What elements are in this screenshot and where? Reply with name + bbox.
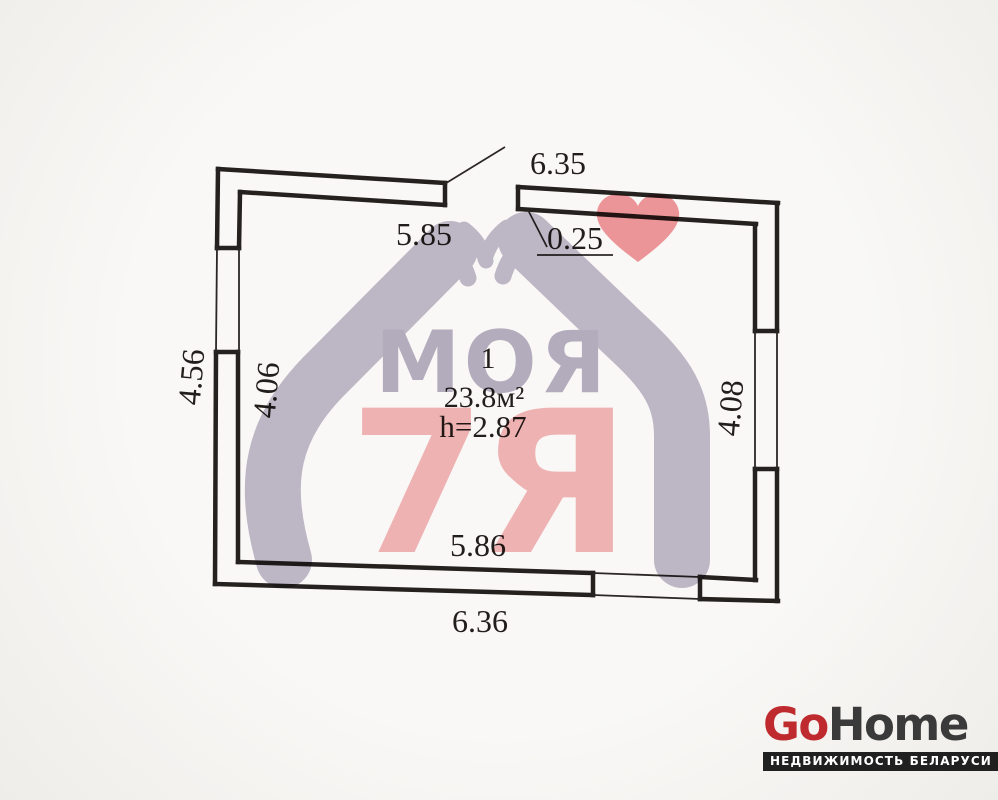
bottom-wall-right-inner	[700, 577, 756, 580]
floor-plan-drawing: 6.35 5.85 0.25 4.56 4.06 4.08 5.86 6.36 …	[0, 0, 998, 800]
scanned-floorplan-page: 6.35 5.85 0.25 4.56 4.06 4.08 5.86 6.36 …	[0, 0, 998, 800]
dim-left-outer: 4.56	[171, 348, 212, 407]
bottom-wall-right-outer	[700, 599, 778, 601]
dim-bottom-outer: 6.36	[452, 603, 508, 639]
top-wall-left-outer	[218, 169, 445, 183]
left-wall-upper-inner	[239, 192, 240, 248]
logo-home: Home	[828, 698, 968, 751]
logo-tagline-bar: НЕДВИЖИМОСТЬ БЕЛАРУСИ	[763, 752, 998, 771]
watermark-suffix: 7Я	[349, 368, 623, 599]
left-wall-upper-outer	[217, 169, 218, 248]
gohome-brand: GoHome	[763, 699, 973, 751]
door-opening-leader	[443, 147, 505, 185]
left-wall-lower-outer	[215, 352, 216, 584]
logo-go: Go	[763, 698, 828, 751]
heart-icon	[597, 194, 679, 262]
dim-top-outer: 6.35	[530, 145, 586, 181]
dim-right-inner: 4.08	[710, 379, 751, 438]
watermark: МОЯ 7Я	[273, 194, 682, 599]
gohome-logo: GoHome НЕДВИЖИМОСТЬ БЕЛАРУСИ	[763, 699, 973, 771]
top-wall-left-inner	[240, 192, 445, 205]
left-window-outer-line	[216, 248, 217, 352]
